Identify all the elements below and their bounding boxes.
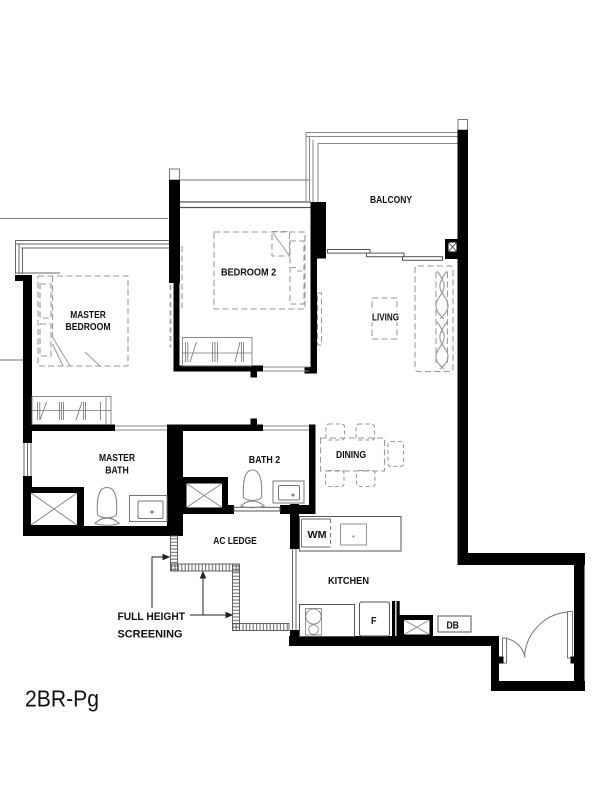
svg-text:KITCHEN: KITCHEN <box>328 575 369 587</box>
svg-text:BEDROOM 2: BEDROOM 2 <box>221 267 276 279</box>
svg-text:BATH: BATH <box>105 465 129 477</box>
svg-text:MASTER: MASTER <box>99 452 135 464</box>
svg-text:LIVING: LIVING <box>372 312 399 324</box>
svg-text:BATH 2: BATH 2 <box>249 454 281 466</box>
svg-text:DINING: DINING <box>336 449 366 461</box>
svg-text:MASTER: MASTER <box>70 309 106 321</box>
svg-text:DB: DB <box>446 620 459 632</box>
svg-text:BALCONY: BALCONY <box>370 194 412 206</box>
svg-text:F: F <box>371 615 377 627</box>
svg-text:2BR-Pg: 2BR-Pg <box>25 686 99 712</box>
svg-text:WM: WM <box>308 529 327 541</box>
svg-text:SCREENING: SCREENING <box>118 629 183 641</box>
svg-text:FULL HEIGHT: FULL HEIGHT <box>118 611 186 623</box>
svg-text:AC LEDGE: AC LEDGE <box>213 535 257 547</box>
svg-text:BEDROOM: BEDROOM <box>66 321 111 333</box>
